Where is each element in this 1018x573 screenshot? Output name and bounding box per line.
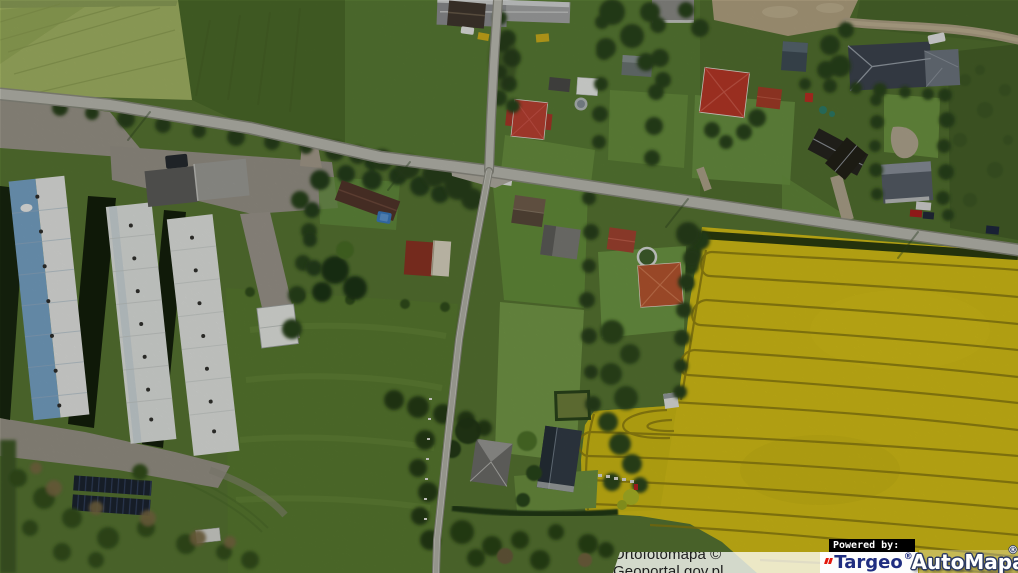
attribution-bar: Ortofotomapa © Geoportal.gov.pl — [613, 552, 823, 573]
automapa-logo[interactable]: AutoMapa ® — [919, 550, 1018, 573]
targeo-wordmark: Targeo — [834, 552, 902, 573]
automapa-wordmark: AutoMapa — [911, 550, 1018, 573]
orthophoto-map-view: Ortofotomapa © Geoportal.gov.pl Powered … — [0, 0, 1018, 573]
aerial-imagery[interactable] — [0, 0, 1018, 573]
targeo-accent-icon — [825, 558, 833, 568]
photo-grain-light — [1, 1, 1018, 573]
powered-by-label: Powered by: — [829, 539, 915, 552]
targeo-logo[interactable]: Targeo® — [820, 552, 918, 573]
automapa-registered-mark: ® — [1008, 545, 1018, 556]
